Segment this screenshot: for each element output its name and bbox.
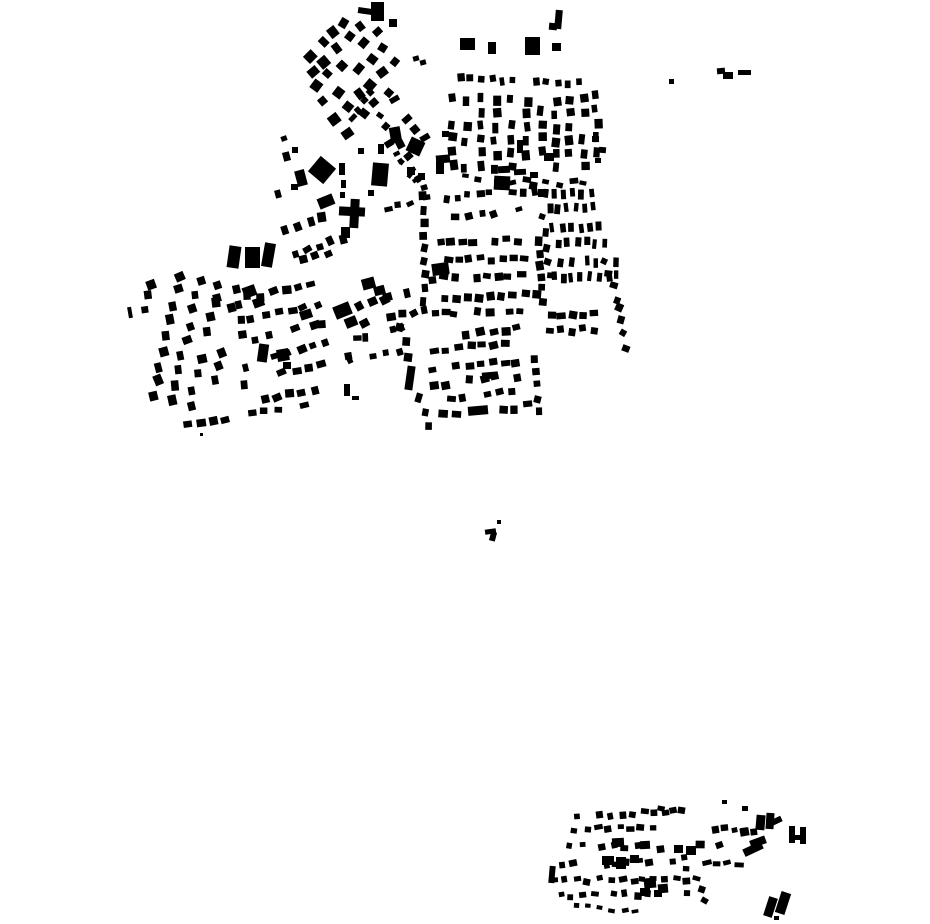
building-footprint bbox=[499, 255, 507, 262]
building-footprint bbox=[495, 388, 504, 396]
building-footprint bbox=[488, 257, 495, 264]
building-footprint bbox=[579, 324, 587, 332]
building-footprint bbox=[341, 227, 350, 238]
building-footprint bbox=[619, 328, 628, 337]
building-footprint bbox=[474, 176, 482, 183]
building-footprint bbox=[542, 228, 549, 237]
building-footprint bbox=[587, 223, 594, 232]
building-footprint bbox=[161, 331, 170, 341]
building-footprint bbox=[692, 875, 701, 881]
building-footprint bbox=[446, 238, 456, 246]
building-footprint bbox=[478, 76, 485, 83]
building-footprint bbox=[594, 824, 603, 830]
building-footprint bbox=[488, 341, 499, 351]
building-footprint bbox=[482, 371, 499, 379]
building-footprint bbox=[316, 243, 324, 251]
building-footprint bbox=[181, 335, 192, 345]
building-footprint bbox=[441, 295, 448, 302]
building-footprint bbox=[612, 838, 624, 848]
building-footprint bbox=[454, 343, 463, 351]
building-footprint bbox=[419, 59, 426, 65]
building-footprint bbox=[187, 303, 198, 314]
building-footprint bbox=[358, 148, 364, 154]
building-footprint bbox=[574, 203, 579, 212]
building-footprint bbox=[492, 123, 498, 134]
building-footprint bbox=[578, 134, 585, 145]
building-footprint bbox=[602, 856, 614, 865]
building-footprint bbox=[577, 272, 582, 281]
building-footprint bbox=[268, 286, 279, 296]
building-footprint bbox=[383, 87, 394, 98]
building-footprint bbox=[280, 225, 289, 235]
building-footprint bbox=[594, 119, 603, 129]
building-footprint bbox=[316, 359, 327, 368]
building-footprint bbox=[338, 17, 350, 29]
building-footprint bbox=[568, 859, 577, 867]
building-footprint bbox=[420, 206, 427, 215]
building-footprint bbox=[238, 316, 245, 324]
building-footprint bbox=[490, 136, 497, 144]
building-footprint bbox=[317, 212, 327, 223]
building-footprint bbox=[371, 162, 389, 186]
building-footprint bbox=[246, 315, 255, 324]
building-footprint bbox=[673, 875, 681, 881]
building-footprint bbox=[371, 2, 384, 21]
building-footprint bbox=[327, 112, 342, 127]
building-footprint bbox=[464, 254, 472, 263]
building-footprint bbox=[539, 298, 547, 306]
building-footprint bbox=[510, 406, 517, 414]
building-footprint bbox=[544, 153, 554, 161]
building-footprint bbox=[551, 137, 560, 147]
building-footprint bbox=[549, 223, 554, 233]
building-footprint bbox=[555, 80, 562, 87]
building-footprint bbox=[531, 355, 538, 363]
building-footprint bbox=[441, 381, 451, 391]
building-footprint bbox=[443, 195, 450, 203]
building-footprint bbox=[596, 811, 604, 819]
building-footprint bbox=[362, 333, 368, 342]
building-footprint bbox=[636, 824, 644, 831]
building-footprint bbox=[460, 38, 475, 50]
building-footprint bbox=[508, 291, 517, 298]
building-footprint bbox=[296, 344, 308, 355]
building-footprint bbox=[389, 56, 400, 67]
building-footprint bbox=[683, 866, 690, 872]
building-footprint bbox=[677, 806, 685, 814]
building-footprint bbox=[774, 916, 779, 920]
building-footprint bbox=[731, 827, 738, 833]
building-footprint bbox=[152, 373, 164, 386]
building-footprint bbox=[276, 348, 290, 362]
building-footprint bbox=[473, 274, 481, 283]
building-footprint bbox=[499, 77, 505, 86]
building-footprint bbox=[542, 244, 550, 253]
building-footprint bbox=[288, 307, 298, 315]
building-footprint bbox=[188, 386, 196, 395]
building-footprint bbox=[325, 235, 335, 246]
building-footprint bbox=[127, 307, 133, 319]
building-footprint bbox=[409, 124, 420, 135]
building-footprint bbox=[376, 66, 390, 79]
building-footprint bbox=[493, 96, 501, 106]
building-footprint bbox=[451, 273, 459, 282]
building-footprint bbox=[165, 314, 175, 325]
building-footprint bbox=[477, 161, 485, 172]
building-footprint bbox=[514, 169, 526, 176]
building-footprint bbox=[552, 43, 561, 51]
building-footprint bbox=[248, 409, 257, 416]
building-footprint bbox=[486, 291, 495, 300]
building-footprint bbox=[442, 131, 449, 137]
building-footprint bbox=[428, 366, 437, 373]
building-footprint bbox=[389, 19, 397, 27]
building-footprint bbox=[514, 238, 522, 246]
building-footprint bbox=[622, 908, 629, 914]
building-footprint bbox=[262, 311, 271, 319]
building-footprint bbox=[565, 123, 572, 131]
building-footprint bbox=[257, 343, 269, 362]
building-footprint bbox=[556, 182, 564, 189]
building-footprint bbox=[309, 79, 323, 93]
building-footprint bbox=[516, 308, 523, 314]
building-footprint bbox=[464, 212, 473, 221]
building-footprint bbox=[669, 858, 676, 864]
building-footprint bbox=[517, 140, 523, 153]
building-footprint bbox=[174, 365, 182, 375]
building-footprint bbox=[447, 146, 456, 155]
building-footprint bbox=[197, 354, 208, 365]
building-footprint bbox=[463, 96, 470, 106]
building-footprint bbox=[318, 36, 330, 48]
building-footprint bbox=[251, 336, 259, 344]
building-footprint bbox=[556, 240, 562, 248]
building-footprint bbox=[629, 811, 637, 818]
building-footprint bbox=[183, 420, 192, 428]
building-footprint bbox=[520, 189, 527, 197]
building-footprint bbox=[561, 876, 568, 883]
building-footprint bbox=[536, 407, 542, 415]
building-footprint bbox=[700, 896, 709, 904]
building-footprint bbox=[275, 308, 284, 316]
building-footprint bbox=[631, 909, 638, 914]
building-footprint bbox=[303, 49, 318, 64]
building-footprint bbox=[331, 42, 343, 55]
building-footprint bbox=[261, 394, 271, 404]
building-footprint bbox=[610, 890, 617, 896]
building-footprint bbox=[596, 875, 603, 881]
building-footprint bbox=[614, 270, 618, 278]
building-footprint bbox=[597, 273, 603, 282]
building-footprint bbox=[618, 824, 624, 829]
building-footprint bbox=[326, 25, 340, 39]
building-footprint bbox=[342, 100, 355, 113]
building-footprint bbox=[302, 245, 312, 255]
building-footprint bbox=[306, 281, 316, 288]
building-footprint bbox=[476, 190, 485, 197]
building-footprint bbox=[789, 826, 795, 843]
building-footprint bbox=[478, 93, 484, 102]
building-footprint bbox=[614, 302, 624, 312]
building-footprint bbox=[340, 192, 345, 198]
building-footprint bbox=[420, 257, 428, 266]
building-footprint bbox=[432, 310, 439, 317]
building-footprint bbox=[563, 203, 568, 212]
building-footprint bbox=[513, 373, 521, 382]
building-footprint bbox=[394, 201, 401, 208]
building-footprint bbox=[420, 184, 428, 191]
building-footprint bbox=[546, 328, 554, 334]
building-footprint bbox=[398, 310, 406, 318]
building-footprint bbox=[561, 274, 567, 284]
building-footprint bbox=[451, 362, 460, 370]
building-footprint bbox=[196, 276, 206, 286]
building-footprint bbox=[515, 206, 523, 212]
map-canvas bbox=[0, 0, 930, 924]
building-footprint bbox=[794, 835, 801, 840]
building-footprint bbox=[285, 389, 295, 398]
building-footprint bbox=[674, 845, 683, 853]
building-footprint bbox=[517, 271, 526, 277]
building-footprint bbox=[530, 172, 538, 178]
building-footprint bbox=[739, 827, 749, 836]
building-footprint bbox=[173, 283, 184, 293]
building-footprint bbox=[512, 323, 521, 331]
building-footprint bbox=[621, 889, 628, 897]
building-footprint bbox=[449, 159, 458, 170]
building-footprint bbox=[187, 401, 196, 411]
building-footprint bbox=[419, 232, 427, 240]
building-footprint bbox=[420, 306, 427, 315]
building-footprint bbox=[462, 173, 469, 178]
building-footprint bbox=[742, 806, 748, 811]
building-footprint bbox=[280, 135, 287, 142]
building-footprint bbox=[452, 295, 461, 303]
building-footprint bbox=[308, 156, 336, 184]
building-footprint bbox=[489, 75, 496, 83]
building-footprint bbox=[428, 276, 436, 284]
building-footprint bbox=[576, 78, 582, 85]
building-footprint bbox=[458, 393, 466, 402]
building-footprint bbox=[450, 311, 458, 318]
building-footprint bbox=[641, 808, 650, 814]
building-footprint bbox=[525, 37, 540, 55]
building-footprint bbox=[240, 380, 247, 389]
building-footprint bbox=[477, 361, 485, 368]
building-footprint bbox=[442, 309, 451, 316]
building-footprint bbox=[477, 341, 485, 347]
building-footprint bbox=[557, 258, 564, 267]
building-footprint bbox=[581, 162, 590, 170]
building-footprint bbox=[507, 148, 515, 158]
building-footprint bbox=[438, 409, 448, 417]
building-footprint bbox=[592, 90, 599, 99]
building-footprint bbox=[232, 284, 241, 294]
building-footprint bbox=[800, 827, 806, 844]
building-footprint bbox=[314, 301, 323, 310]
building-footprint bbox=[566, 842, 572, 849]
building-footprint bbox=[213, 360, 223, 371]
building-footprint bbox=[462, 331, 470, 340]
building-footprint bbox=[506, 308, 514, 314]
building-footprint bbox=[245, 247, 260, 268]
building-footprint bbox=[696, 841, 705, 849]
building-footprint bbox=[386, 312, 396, 321]
building-footprint bbox=[167, 394, 177, 406]
building-footprint bbox=[565, 96, 574, 105]
building-footprint bbox=[282, 285, 292, 294]
building-footprint bbox=[452, 411, 462, 418]
building-footprint bbox=[321, 338, 330, 347]
building-footprint bbox=[158, 346, 169, 357]
building-footprint bbox=[271, 392, 282, 402]
building-footprint bbox=[475, 327, 486, 337]
building-footprint bbox=[349, 199, 360, 228]
building-footprint bbox=[650, 825, 656, 830]
building-footprint bbox=[402, 337, 410, 346]
building-footprint bbox=[574, 903, 580, 908]
building-footprint bbox=[483, 391, 491, 398]
building-footprint bbox=[154, 362, 163, 373]
building-footprint bbox=[585, 903, 591, 908]
building-footprint bbox=[547, 272, 553, 278]
building-footprint bbox=[617, 315, 626, 324]
building-footprint bbox=[686, 846, 696, 855]
building-footprint bbox=[682, 877, 690, 884]
building-footprint bbox=[464, 293, 472, 301]
building-footprint bbox=[448, 120, 455, 129]
building-footprint bbox=[200, 433, 203, 436]
building-footprint bbox=[656, 845, 665, 853]
building-footprint bbox=[507, 135, 514, 145]
building-footprint bbox=[485, 308, 494, 316]
building-footprint bbox=[602, 239, 607, 248]
building-footprint bbox=[493, 151, 502, 161]
building-footprint bbox=[644, 877, 657, 888]
building-footprint bbox=[353, 335, 362, 341]
building-footprint bbox=[609, 281, 618, 289]
building-footprint bbox=[378, 144, 384, 154]
building-footprint bbox=[211, 375, 219, 385]
building-footprint bbox=[448, 132, 458, 142]
building-footprint bbox=[734, 862, 744, 867]
building-footprint bbox=[538, 189, 548, 197]
building-footprint bbox=[194, 369, 202, 377]
building-footprint bbox=[498, 166, 510, 174]
building-footprint bbox=[292, 367, 302, 375]
building-footprint bbox=[494, 272, 503, 281]
building-footprint bbox=[376, 111, 384, 119]
building-footprint bbox=[332, 301, 353, 319]
building-footprint bbox=[510, 359, 520, 368]
building-footprint bbox=[574, 813, 580, 819]
building-footprint bbox=[553, 97, 562, 107]
building-footprint bbox=[332, 86, 346, 100]
building-footprint bbox=[658, 884, 669, 894]
building-footprint bbox=[564, 135, 573, 146]
building-footprint bbox=[592, 239, 597, 249]
building-footprint bbox=[479, 108, 485, 118]
building-footprint bbox=[489, 328, 499, 336]
building-footprint bbox=[466, 74, 473, 81]
building-footprint bbox=[491, 165, 498, 174]
building-footprint bbox=[600, 257, 608, 265]
building-footprint bbox=[553, 124, 561, 135]
building-footprint bbox=[584, 237, 590, 245]
building-footprint bbox=[669, 79, 674, 84]
building-footprint bbox=[619, 811, 626, 819]
building-footprint bbox=[551, 111, 557, 119]
building-footprint bbox=[566, 108, 575, 117]
building-footprint bbox=[604, 825, 612, 833]
building-footprint bbox=[553, 162, 560, 172]
building-footprint bbox=[260, 407, 268, 414]
building-footprint bbox=[468, 239, 477, 246]
building-footprint bbox=[436, 161, 444, 174]
building-footprint bbox=[208, 416, 218, 426]
building-footprint bbox=[461, 164, 467, 173]
building-footprint bbox=[377, 42, 388, 53]
building-footprint bbox=[569, 257, 575, 267]
building-footprint bbox=[616, 857, 626, 869]
building-footprint bbox=[613, 257, 619, 267]
building-footprint bbox=[431, 262, 450, 276]
building-footprint bbox=[579, 180, 587, 186]
building-footprint bbox=[568, 273, 573, 283]
building-footprint bbox=[524, 122, 531, 132]
building-footprint bbox=[630, 855, 639, 863]
building-footprint bbox=[368, 97, 379, 108]
building-footprint bbox=[191, 291, 198, 299]
building-footprint bbox=[567, 894, 573, 900]
building-footprint bbox=[265, 331, 273, 340]
building-footprint bbox=[141, 306, 149, 314]
building-footprint bbox=[291, 184, 298, 190]
building-footprint bbox=[596, 905, 602, 910]
building-footprint bbox=[274, 407, 282, 413]
building-footprint bbox=[508, 120, 516, 129]
building-footprint bbox=[578, 190, 584, 200]
building-footprint bbox=[580, 149, 587, 159]
building-footprint bbox=[348, 113, 357, 122]
building-footprint bbox=[298, 254, 308, 264]
building-footprint bbox=[479, 210, 486, 217]
building-footprint bbox=[568, 310, 578, 319]
building-footprint bbox=[404, 366, 415, 391]
building-footprint bbox=[442, 348, 449, 354]
building-footprint bbox=[548, 312, 556, 319]
building-footprint bbox=[585, 826, 592, 832]
building-footprint bbox=[354, 300, 365, 311]
building-footprint bbox=[590, 202, 595, 211]
building-footprint bbox=[429, 381, 439, 390]
building-footprint bbox=[292, 250, 300, 258]
building-footprint bbox=[401, 113, 413, 124]
building-footprint bbox=[582, 204, 587, 213]
building-footprint bbox=[580, 842, 586, 847]
building-footprint bbox=[478, 147, 485, 156]
building-footprint bbox=[403, 288, 411, 298]
building-footprint bbox=[598, 843, 606, 851]
building-footprint bbox=[455, 257, 463, 263]
building-footprint bbox=[317, 95, 328, 106]
building-footprint bbox=[205, 311, 215, 321]
building-footprint bbox=[722, 800, 727, 804]
building-footprint bbox=[621, 344, 630, 353]
building-footprint bbox=[493, 108, 502, 118]
building-footprint bbox=[503, 273, 511, 280]
building-footprint bbox=[420, 219, 428, 227]
